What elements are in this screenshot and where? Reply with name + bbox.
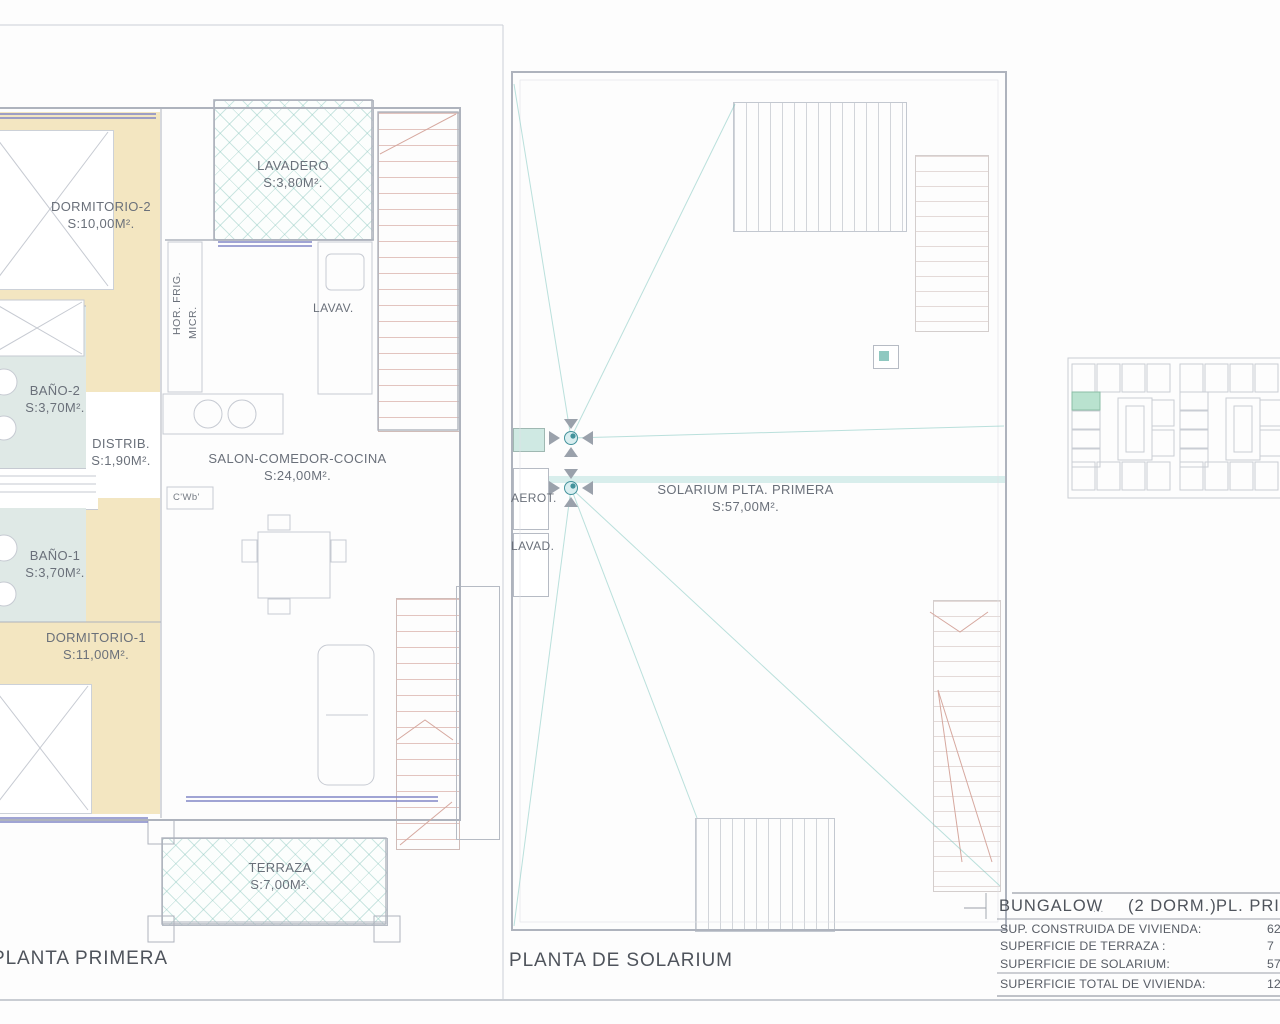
- table-model: BUNGALOW: [999, 897, 1103, 916]
- room-label-dormitorio1: DORMITORIO-1 S:11,00M².: [15, 630, 177, 664]
- table-row-value: 126: [1267, 977, 1280, 991]
- table-row-label: SUPERFICIE TOTAL DE VIVIENDA:: [1000, 977, 1206, 991]
- room-label-bano2: BAÑO-2 S:3,70M².: [0, 383, 136, 417]
- ac-unit-box: [513, 428, 545, 452]
- right-plan-title: PLANTA DE SOLARIUM: [509, 950, 733, 972]
- pergola-bottom: [695, 818, 835, 932]
- table-model-dots: ...: [1093, 904, 1104, 915]
- side-shaft: [456, 586, 500, 840]
- table-row-label: SUPERFICIE DE TERRAZA :: [1000, 939, 1166, 953]
- wardrobe-area: [0, 468, 98, 510]
- annotation-lavav: LAVAV.: [313, 301, 354, 315]
- room-label-dormitorio2: DORMITORIO-2 S:10,00M².: [20, 199, 182, 233]
- room-label-bano1: BAÑO-1 S:3,70M².: [0, 548, 136, 582]
- site-key: [1068, 358, 1280, 498]
- room-label-solarium: SOLARIUM PLTA. PRIMERA S:57,00M².: [623, 482, 868, 516]
- room-label-salon: SALON-COMEDOR-COCINA S:24,00M².: [175, 451, 420, 485]
- drain-symbol-1: [549, 419, 593, 457]
- table-row-value: 57: [1267, 957, 1280, 971]
- stairs-lower: [396, 598, 460, 850]
- table-row-value: 7: [1267, 939, 1274, 953]
- room-label-lavadero: LAVADERO S:3,80M².: [212, 158, 374, 192]
- left-plan-title: PLANTA PRIMERA: [0, 948, 168, 970]
- bed1-area: [0, 684, 92, 814]
- annotation-micr: MICR.: [187, 287, 199, 339]
- stairs-upper: [378, 112, 460, 432]
- table-dorms: (2 DORM.): [1128, 897, 1217, 916]
- table-row-label: SUP. CONSTRUIDA DE VIVIENDA:: [1000, 922, 1202, 936]
- annotation-aerot: AEROT.: [511, 491, 557, 505]
- annotation-cwb: C'Wb': [173, 492, 200, 503]
- annotation-hor-frig: HOR. FRIG.: [171, 247, 183, 335]
- pergola-top: [733, 102, 907, 232]
- stairs-right-top: [915, 155, 989, 332]
- vent-icon: [879, 351, 889, 361]
- table-row-value: 62: [1267, 922, 1280, 936]
- annotation-lavad: LAVAD.: [511, 539, 554, 553]
- site-key-highlight-unit: [1072, 392, 1100, 410]
- table-row-label: SUPERFICIE DE SOLARIUM:: [1000, 957, 1170, 971]
- stairs-right-bottom: [933, 600, 1001, 892]
- table-floor: PL. PRIMERA: [1216, 897, 1280, 916]
- room-label-terraza: TERRAZA S:7,00M².: [199, 860, 361, 894]
- floorplan-sheet: DORMITORIO-2 S:10,00M². LAVADERO S:3,80M…: [0, 0, 1280, 1024]
